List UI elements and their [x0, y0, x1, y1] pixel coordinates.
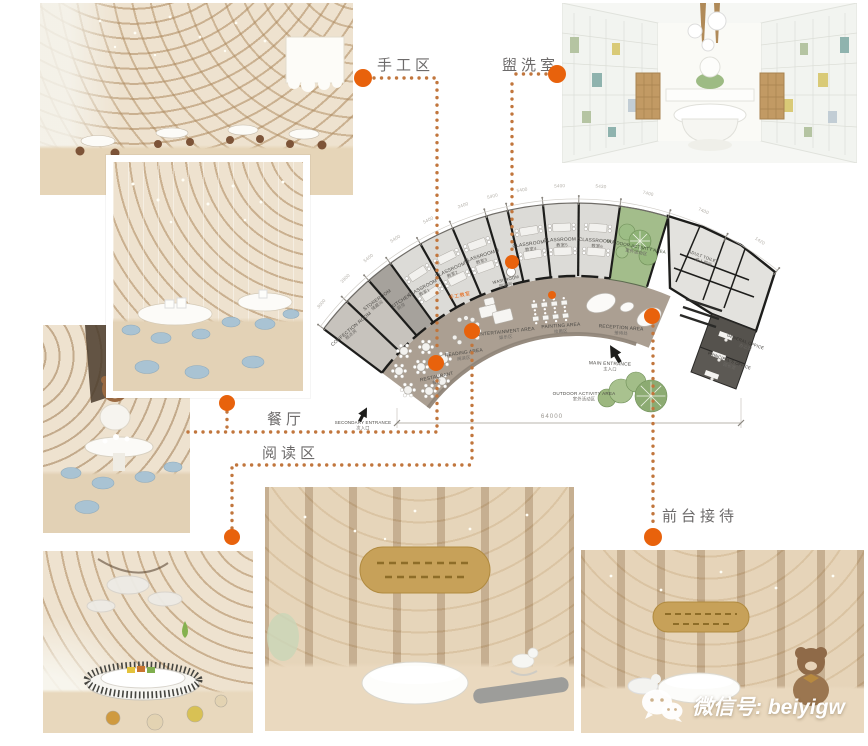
plan-labels: CONFECTION ROOM糕点房STOREROOM储藏间KITCHEN厨房C… — [330, 236, 765, 431]
dot-reading-label — [224, 529, 240, 545]
svg-text:MAIN ENTRANCE: MAIN ENTRANCE — [589, 360, 631, 367]
svg-text:ENTERTAINMENT AREA: ENTERTAINMENT AREA — [477, 326, 536, 338]
svg-text:CLASSROOM 3: CLASSROOM 3 — [463, 247, 500, 264]
wechat-icon — [640, 688, 684, 724]
svg-text:7400: 7400 — [698, 206, 710, 215]
svg-text:7400: 7400 — [642, 190, 654, 197]
photo-reading-area — [43, 551, 253, 733]
svg-text:室外活动区: 室外活动区 — [625, 246, 649, 257]
dot-washroom-plan — [505, 255, 519, 269]
svg-text:STOREROOM: STOREROOM — [362, 288, 392, 312]
svg-text:PRINCIPAL'S OFFICE: PRINCIPAL'S OFFICE — [707, 350, 751, 370]
svg-text:READING AREA: READING AREA — [444, 347, 483, 358]
svg-text:5430: 5430 — [595, 184, 607, 190]
dining-furniture-illustration — [113, 162, 303, 391]
svg-text:1420: 1420 — [754, 236, 766, 246]
leader-handcraft — [374, 78, 437, 352]
design-presentation-page: CONFECTION ROOM糕点房STOREROOM储藏间KITCHEN厨房C… — [0, 0, 868, 746]
svg-text:RECEPTION AREA: RECEPTION AREA — [598, 323, 644, 332]
svg-text:CLASSROOM 2: CLASSROOM 2 — [435, 259, 471, 280]
dot-restaurant-plan — [428, 355, 444, 371]
svg-text:教室5: 教室5 — [556, 241, 568, 248]
svg-text:2400: 2400 — [457, 201, 469, 210]
svg-text:教室6: 教室6 — [591, 242, 603, 250]
svg-text:教室4: 教室4 — [525, 245, 538, 254]
svg-text:OUTDOOR ACTIVITY AREA: OUTDOOR ACTIVITY AREA — [553, 391, 617, 396]
svg-text:5400: 5400 — [389, 233, 401, 243]
svg-text:储藏间: 储藏间 — [370, 298, 385, 312]
svg-text:5400: 5400 — [487, 192, 499, 200]
reception-illustration — [265, 487, 574, 731]
svg-text:室外活动区: 室外活动区 — [573, 396, 596, 403]
callout-front-desk: 前台接待 — [662, 505, 738, 526]
callout-dining-hall: 餐厅 — [267, 408, 305, 429]
svg-text:接待处: 接待处 — [614, 329, 628, 337]
svg-text:绘画区: 绘画区 — [554, 327, 568, 335]
svg-text:教室3: 教室3 — [475, 256, 489, 266]
photo-washroom — [562, 3, 857, 163]
svg-text:5400: 5400 — [516, 186, 528, 193]
svg-text:手工教室: 手工教室 — [448, 290, 471, 301]
photo-entrance-reception — [265, 487, 574, 731]
svg-text:办公室: 办公室 — [738, 341, 754, 352]
photo-dining-hall — [106, 155, 310, 398]
svg-text:餐厅: 餐厅 — [432, 378, 443, 387]
svg-text:ADULT TOILET: ADULT TOILET — [688, 249, 719, 265]
washroom-illustration — [562, 3, 857, 163]
svg-text:糕点房: 糕点房 — [344, 327, 359, 341]
callout-washroom: 盥洗室 — [502, 54, 559, 75]
svg-text:5400: 5400 — [363, 252, 375, 263]
svg-text:CLASSROOM 1: CLASSROOM 1 — [407, 276, 442, 299]
svg-text:主入口: 主入口 — [603, 365, 617, 371]
svg-text:娱乐区: 娱乐区 — [499, 333, 514, 341]
svg-text:RESTAURANT: RESTAURANT — [419, 371, 454, 384]
svg-text:教室1: 教室1 — [418, 286, 432, 298]
svg-text:PAINTING AREA: PAINTING AREA — [541, 322, 581, 331]
plan-entrance-arrows — [355, 342, 625, 424]
svg-text:GENERAL OFFICE: GENERAL OFFICE — [726, 333, 765, 351]
svg-text:厨房: 厨房 — [396, 301, 407, 312]
plan-dimensions: 3000390054005400540024005400540054005430… — [316, 183, 780, 428]
svg-text:CONFECTION ROOM: CONFECTION ROOM — [330, 311, 373, 348]
plan-classroom-furniture — [404, 223, 612, 305]
plan-trees — [598, 224, 667, 412]
svg-text:成人厕所: 成人厕所 — [694, 256, 714, 269]
svg-text:盥洗间: 盥洗间 — [498, 280, 513, 290]
callout-reading-area: 阅读区 — [262, 442, 319, 463]
svg-text:园长室: 园长室 — [722, 360, 738, 371]
wechat-id-text: 微信号: beiyigw — [692, 691, 845, 721]
dot-reception-label — [644, 528, 662, 546]
svg-text:KITCHEN: KITCHEN — [390, 292, 412, 309]
svg-text:SECONDARY ENTRANCE: SECONDARY ENTRANCE — [335, 420, 392, 425]
reading-area-illustration — [43, 551, 253, 733]
wechat-watermark: 微信号: beiyigw — [640, 688, 845, 724]
dot-painting-small — [548, 291, 556, 299]
dot-reading-plan — [464, 323, 480, 339]
svg-text:教室2: 教室2 — [446, 268, 460, 279]
callout-handcraft-area: 手工区 — [377, 54, 434, 75]
plan-corridor-items — [391, 290, 664, 398]
svg-text:次入口: 次入口 — [356, 425, 370, 432]
plan-base — [324, 203, 671, 409]
leader-washroom — [512, 74, 546, 252]
svg-text:3900: 3900 — [339, 273, 351, 284]
svg-text:CLASSROOM 6: CLASSROOM 6 — [578, 237, 615, 246]
dot-handcraft-label — [354, 69, 372, 87]
svg-text:5400: 5400 — [422, 215, 434, 224]
svg-text:5400: 5400 — [554, 183, 565, 189]
plan-right-block — [668, 216, 775, 389]
svg-text:OUTDOOR ACTIVITY AREA: OUTDOOR ACTIVITY AREA — [606, 238, 666, 254]
dot-reception-plan — [644, 308, 660, 324]
plan-walls — [324, 203, 669, 407]
svg-text:WASHROOM: WASHROOM — [492, 274, 520, 285]
svg-text:CLASSROOM 5: CLASSROOM 5 — [543, 236, 580, 243]
svg-text:CLASSROOM 4: CLASSROOM 4 — [512, 238, 549, 249]
svg-text:3000: 3000 — [316, 298, 327, 310]
svg-text:64000: 64000 — [541, 413, 563, 420]
svg-text:阅读区: 阅读区 — [457, 354, 472, 363]
